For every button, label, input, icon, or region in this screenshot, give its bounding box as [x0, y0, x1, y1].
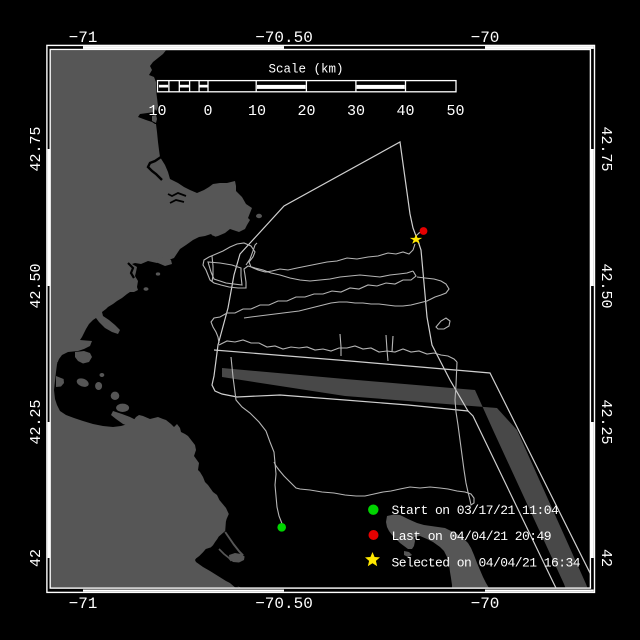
svg-text:−71: −71 — [69, 595, 98, 613]
svg-text:−70: −70 — [471, 29, 500, 47]
svg-text:42.25: 42.25 — [28, 399, 45, 444]
svg-text:20: 20 — [297, 103, 315, 120]
svg-text:Start on 03/17/21 11:04: Start on 03/17/21 11:04 — [392, 503, 560, 518]
svg-text:42.75: 42.75 — [597, 126, 614, 171]
svg-text:42.25: 42.25 — [597, 399, 614, 444]
svg-text:42: 42 — [597, 549, 614, 567]
svg-text:42.75: 42.75 — [28, 126, 45, 171]
svg-text:−70.50: −70.50 — [255, 29, 313, 47]
svg-text:42.50: 42.50 — [597, 263, 614, 308]
svg-text:−70.50: −70.50 — [255, 595, 313, 613]
svg-text:10: 10 — [248, 103, 266, 120]
svg-text:30: 30 — [347, 103, 365, 120]
svg-text:0: 0 — [203, 103, 212, 120]
svg-text:Last on 04/04/21 20:49: Last on 04/04/21 20:49 — [392, 529, 552, 544]
svg-text:42.50: 42.50 — [28, 263, 45, 308]
svg-text:40: 40 — [396, 103, 414, 120]
svg-text:Selected on 04/04/21 16:34: Selected on 04/04/21 16:34 — [392, 556, 581, 571]
svg-text:Scale (km): Scale (km) — [268, 63, 343, 77]
svg-text:−70: −70 — [471, 595, 500, 613]
svg-text:42: 42 — [28, 549, 45, 567]
svg-text:−71: −71 — [69, 29, 98, 47]
svg-text:50: 50 — [446, 103, 464, 120]
svg-text:10: 10 — [148, 103, 166, 120]
